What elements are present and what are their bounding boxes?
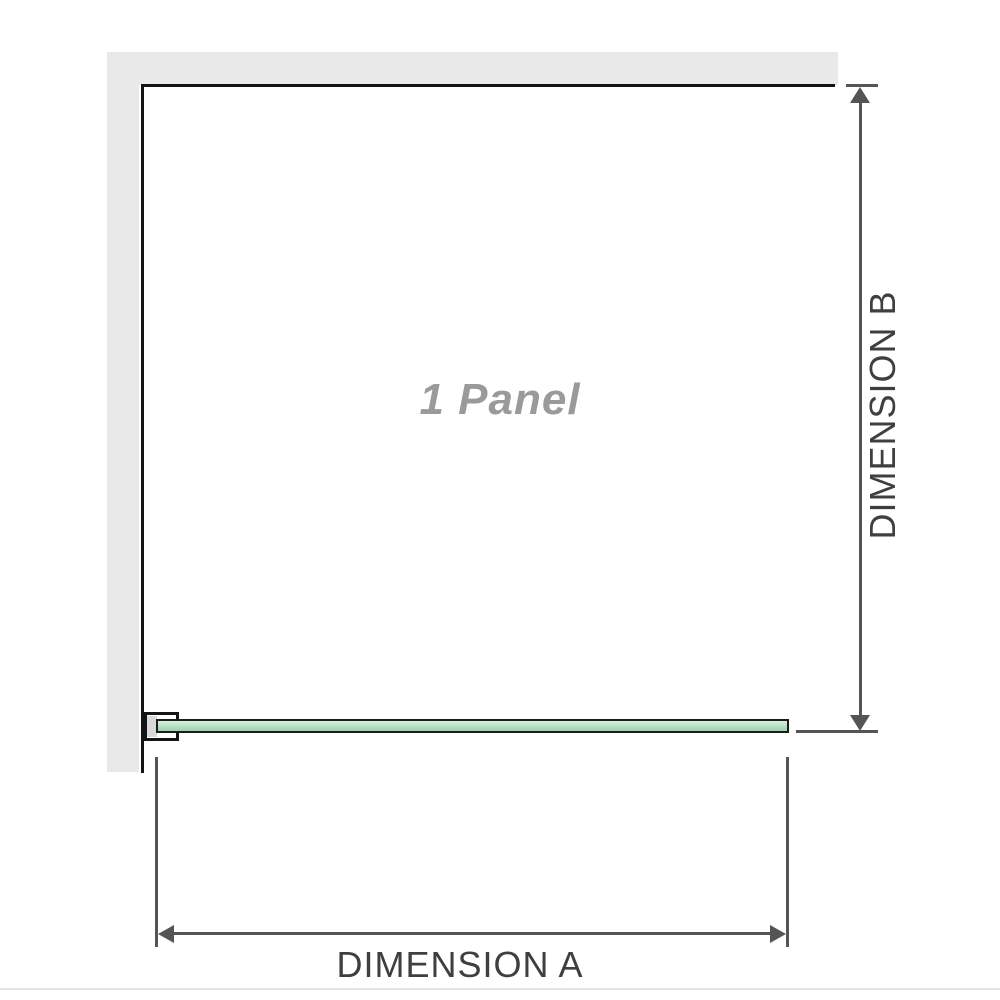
glass-panel bbox=[156, 719, 789, 733]
dim-a-tick-left bbox=[155, 757, 158, 947]
panel-count-label: 1 Panel bbox=[350, 372, 650, 428]
shower-panel-diagram: 1 Panel DIMENSION B DIMENSION A bbox=[0, 0, 1000, 1000]
dim-b-arrow-down-icon bbox=[850, 715, 870, 731]
dim-a-arrow-left-icon bbox=[158, 925, 174, 943]
bottom-divider bbox=[0, 988, 1000, 990]
dim-a-label: DIMENSION A bbox=[310, 944, 610, 986]
dim-a-arrow-right-icon bbox=[770, 925, 786, 943]
wall-left bbox=[107, 52, 139, 772]
wall-top bbox=[107, 52, 838, 85]
dim-b-label: DIMENSION B bbox=[863, 265, 903, 565]
dim-b-arrow-up-icon bbox=[850, 87, 870, 103]
panel-outline-left bbox=[141, 84, 144, 773]
panel-outline-top bbox=[143, 84, 835, 87]
dim-a-tick-right bbox=[786, 757, 789, 947]
dim-a-line bbox=[170, 932, 772, 935]
